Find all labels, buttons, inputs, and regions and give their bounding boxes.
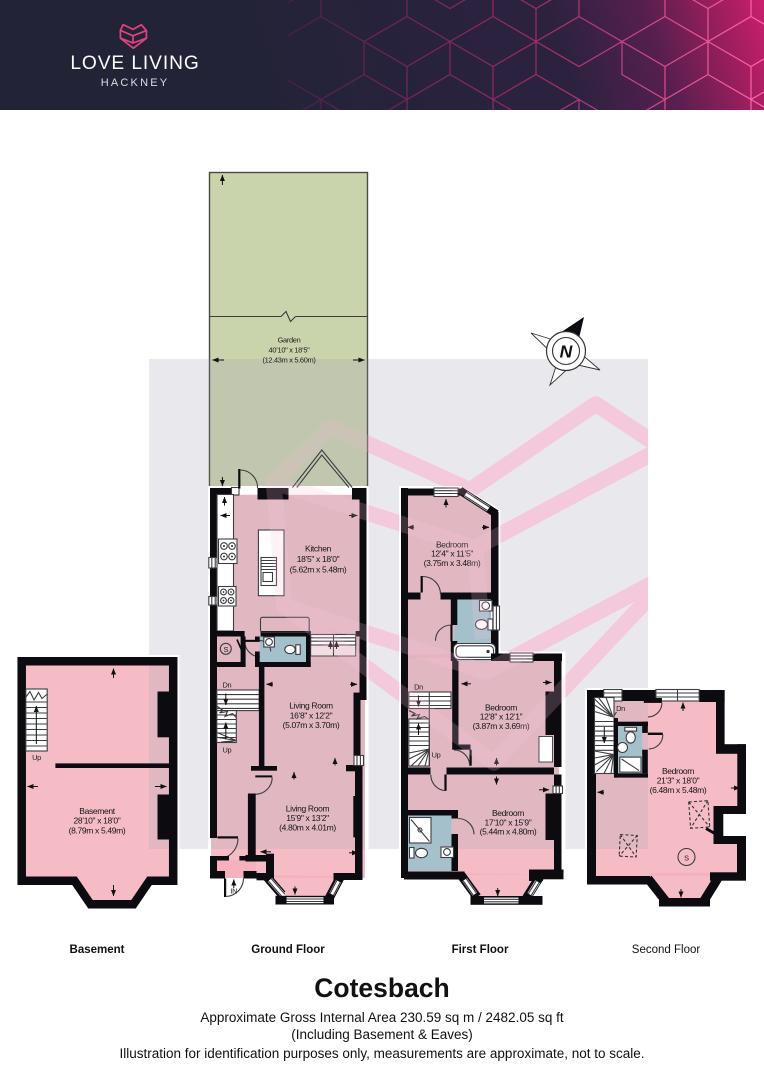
svg-text:16’8" x 12’2": 16’8" x 12’2" [290,710,333,720]
svg-text:Ground Floor: Ground Floor [251,944,325,956]
svg-text:Approximate Gross Internal Are: Approximate Gross Internal Area 230.59 s… [200,1010,563,1025]
svg-text:S: S [684,853,689,862]
svg-text:LOVE LIVING: LOVE LIVING [70,53,199,74]
svg-text:40’10" x 18’5": 40’10" x 18’5" [269,346,311,355]
svg-text:(12.43m x 5.60m): (12.43m x 5.60m) [262,356,315,365]
svg-text:Illustration for identificatio: Illustration for identification purposes… [119,1046,644,1061]
svg-text:Kitchen: Kitchen [305,544,332,554]
svg-text:(5.62m x 5.48m): (5.62m x 5.48m) [290,565,347,575]
svg-text:S: S [223,645,228,654]
svg-text:28’10" x 18’0": 28’10" x 18’0" [74,816,121,826]
svg-text:N: N [560,342,573,362]
svg-text:Dn: Dn [414,683,423,692]
svg-text:Garden: Garden [278,336,301,345]
svg-text:Bedroom: Bedroom [662,766,694,776]
svg-text:(5.44m x 4.80m): (5.44m x 4.80m) [480,827,537,837]
svg-text:Up: Up [32,753,41,762]
svg-text:Dn: Dn [222,681,231,690]
svg-text:18’5" x 18’0": 18’5" x 18’0" [297,554,340,564]
svg-text:IN: IN [230,887,237,896]
svg-text:Up: Up [432,751,441,760]
svg-text:21’3" x 18’0": 21’3" x 18’0" [657,776,700,786]
svg-text:Basement: Basement [79,806,115,816]
svg-text:Living Room: Living Room [289,701,333,711]
svg-text:(4.80m x 4.01m): (4.80m x 4.01m) [279,822,336,832]
svg-text:(5.07m x 3.70m): (5.07m x 3.70m) [283,720,340,730]
svg-text:Cotesbach: Cotesbach [314,973,449,1003]
svg-text:Basement: Basement [70,944,125,956]
svg-text:15’9" x 13’2": 15’9" x 13’2" [286,813,329,823]
svg-text:Second Floor: Second Floor [632,944,701,956]
svg-text:Up: Up [222,746,231,755]
svg-text:(8.79m x 5.49m): (8.79m x 5.49m) [69,825,126,835]
svg-text:(Including Basement & Eaves): (Including Basement & Eaves) [291,1027,473,1042]
svg-text:Dn: Dn [616,704,625,713]
svg-text:(6.48m x 5.48m): (6.48m x 5.48m) [650,785,707,795]
svg-text:First Floor: First Floor [452,944,509,956]
svg-text:HACKNEY: HACKNEY [101,77,170,89]
